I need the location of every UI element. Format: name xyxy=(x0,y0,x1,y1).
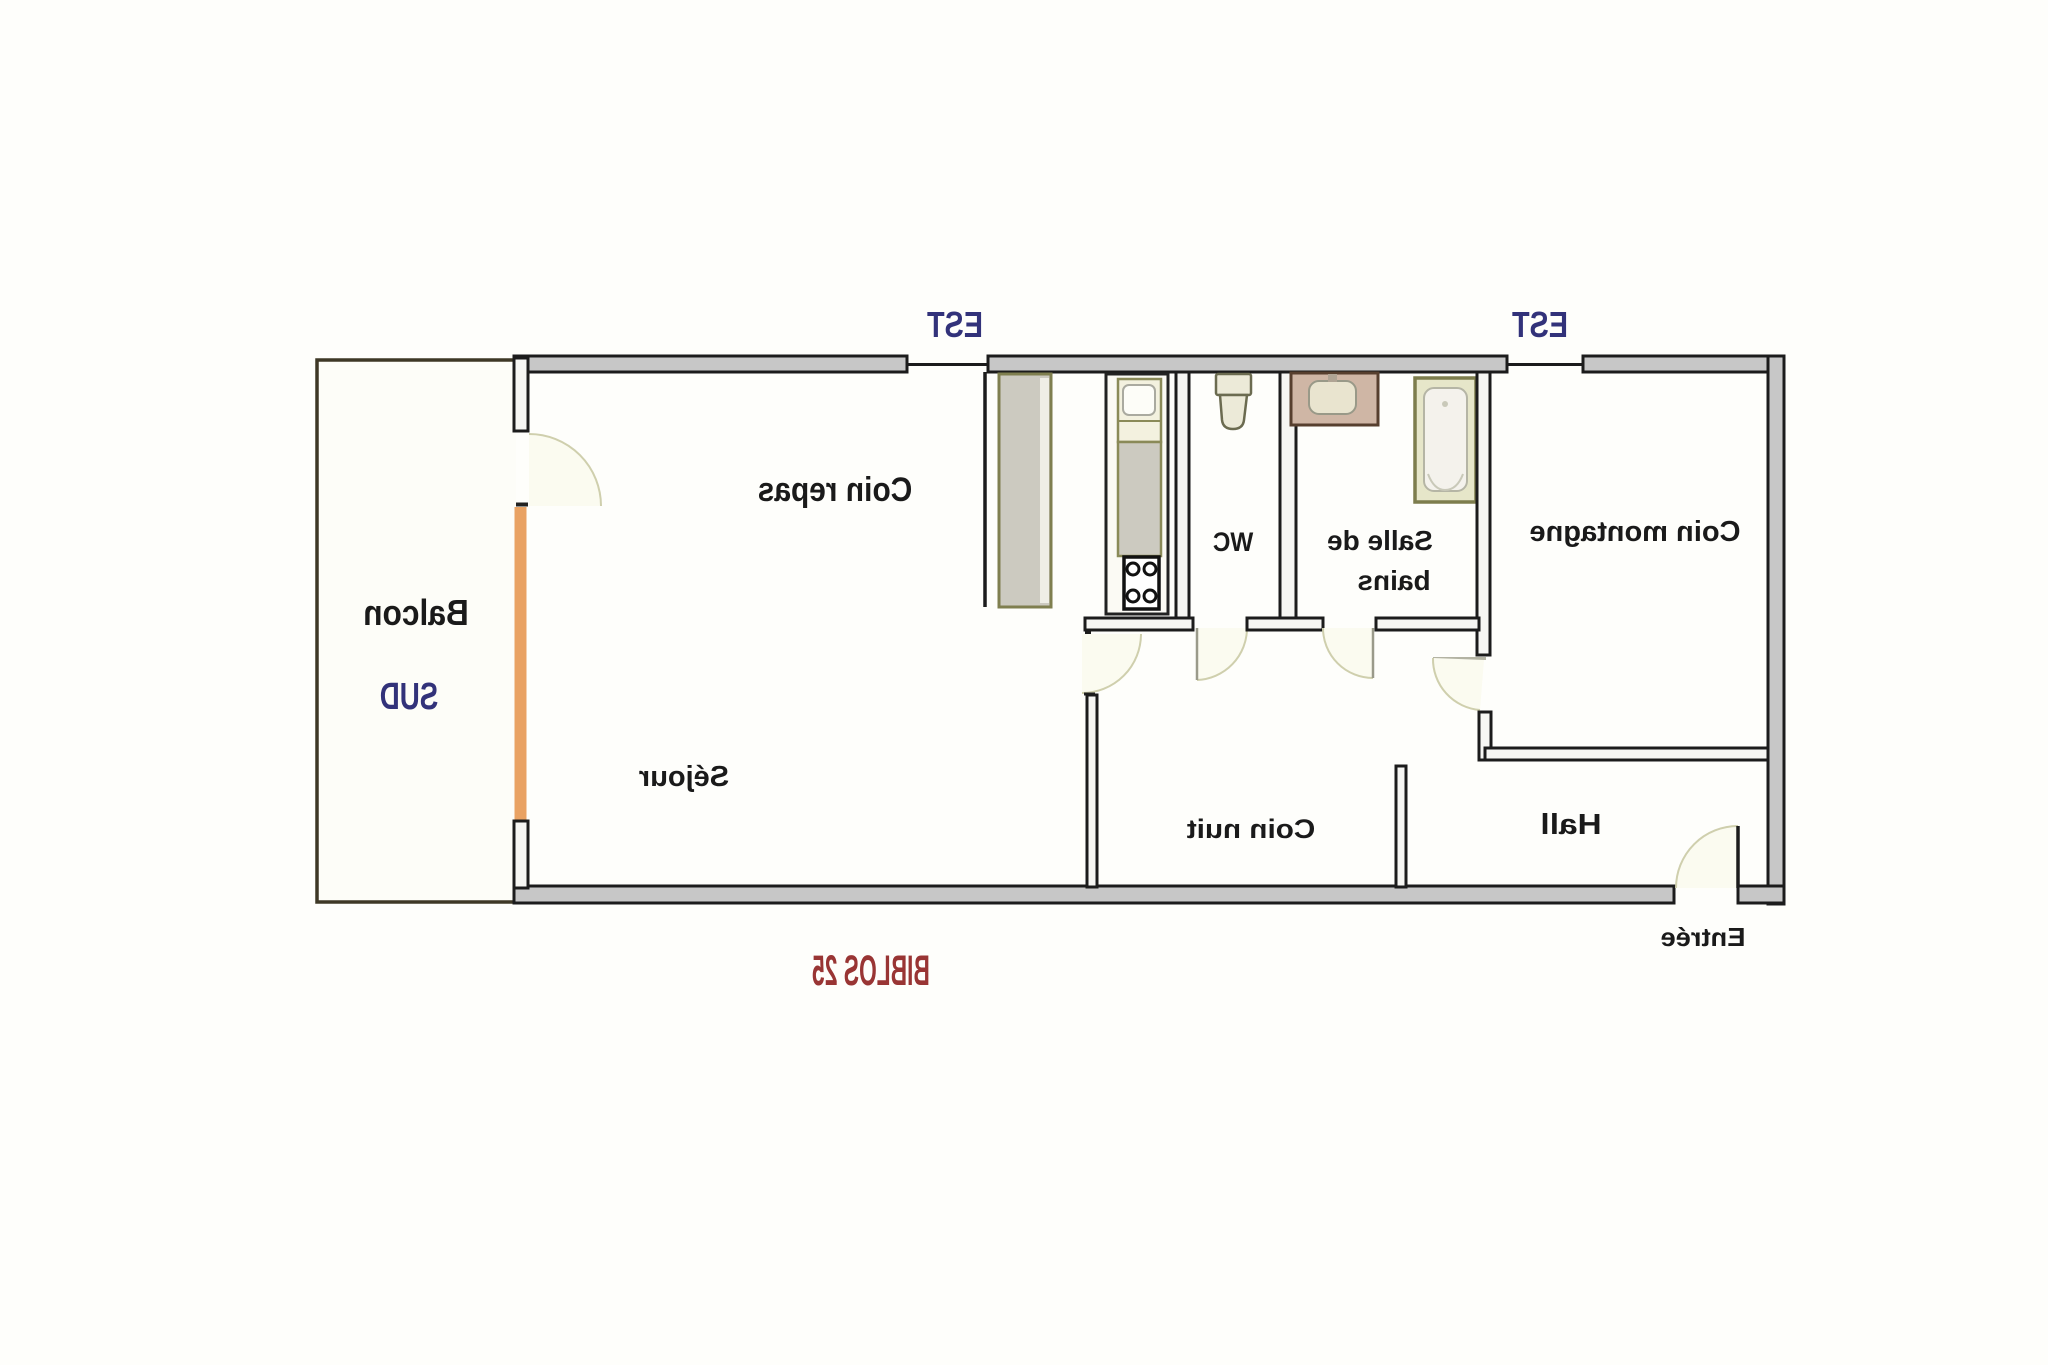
svg-text:SUD: SUD xyxy=(380,676,439,718)
svg-text:Coin repas: Coin repas xyxy=(758,470,913,508)
svg-text:Coin nuit: Coin nuit xyxy=(1186,814,1315,844)
svg-text:Hall: Hall xyxy=(1540,808,1601,840)
svg-text:bains: bains xyxy=(1357,565,1430,596)
svg-text:Balcon: Balcon xyxy=(363,593,469,633)
svg-text:EST: EST xyxy=(1512,304,1568,345)
svg-text:Coin montagne: Coin montagne xyxy=(1529,516,1740,548)
svg-text:EST: EST xyxy=(927,304,983,345)
svg-text:Salle de: Salle de xyxy=(1327,525,1433,556)
svg-text:Entrée: Entrée xyxy=(1661,923,1746,952)
svg-text:BIBLOS 25: BIBLOS 25 xyxy=(812,948,930,995)
svg-text:WC: WC xyxy=(1213,528,1253,557)
svg-text:Séjour: Séjour xyxy=(639,761,729,793)
